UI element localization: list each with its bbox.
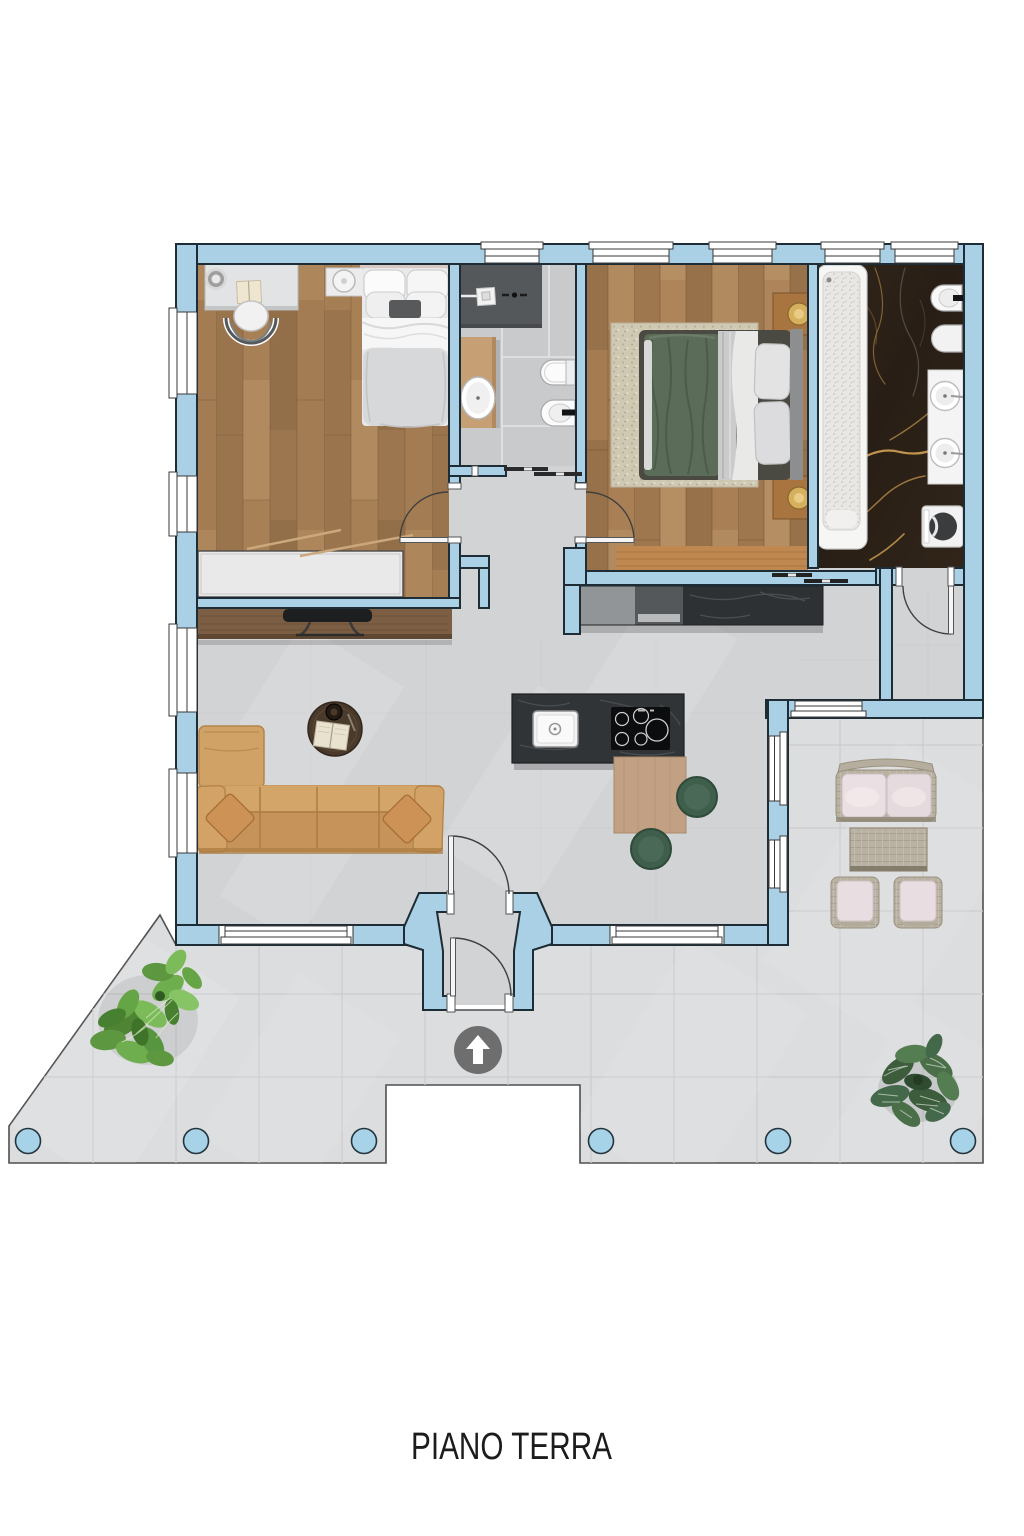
svg-text:PIANO TERRA: PIANO TERRA (411, 1426, 613, 1468)
